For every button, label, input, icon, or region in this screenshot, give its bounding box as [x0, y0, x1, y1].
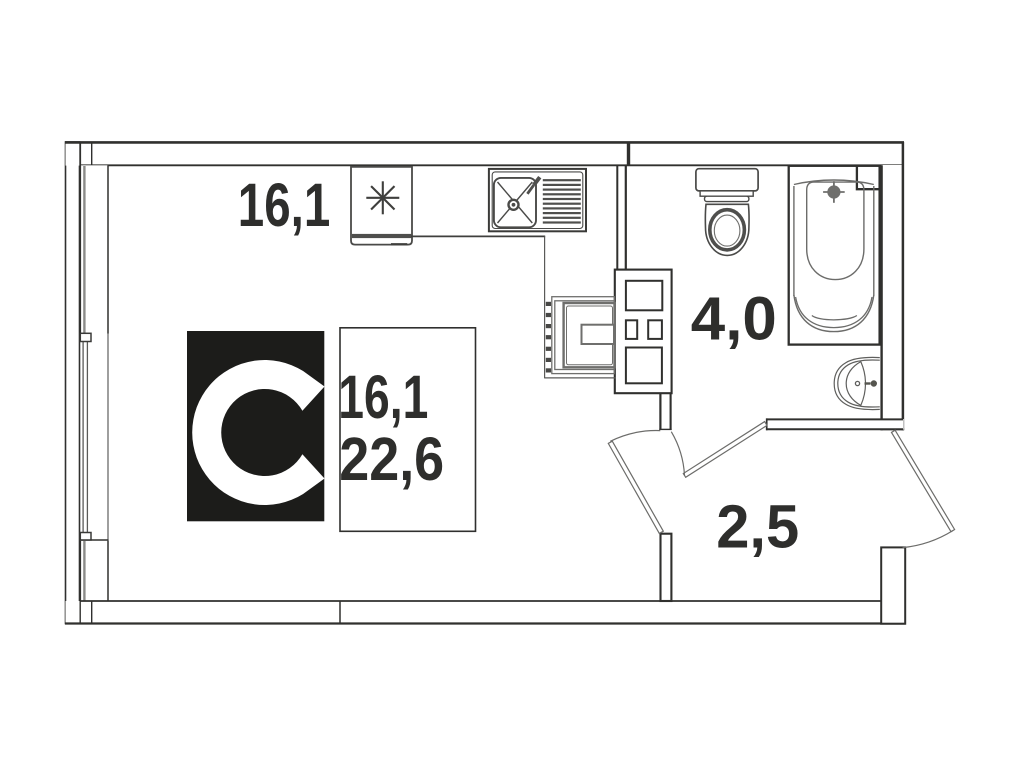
svg-text:2,5: 2,5	[716, 493, 799, 561]
svg-text:16,1: 16,1	[338, 363, 428, 431]
svg-text:4,0: 4,0	[691, 285, 777, 353]
svg-text:22,6: 22,6	[339, 425, 444, 493]
svg-text:16,1: 16,1	[238, 171, 330, 239]
